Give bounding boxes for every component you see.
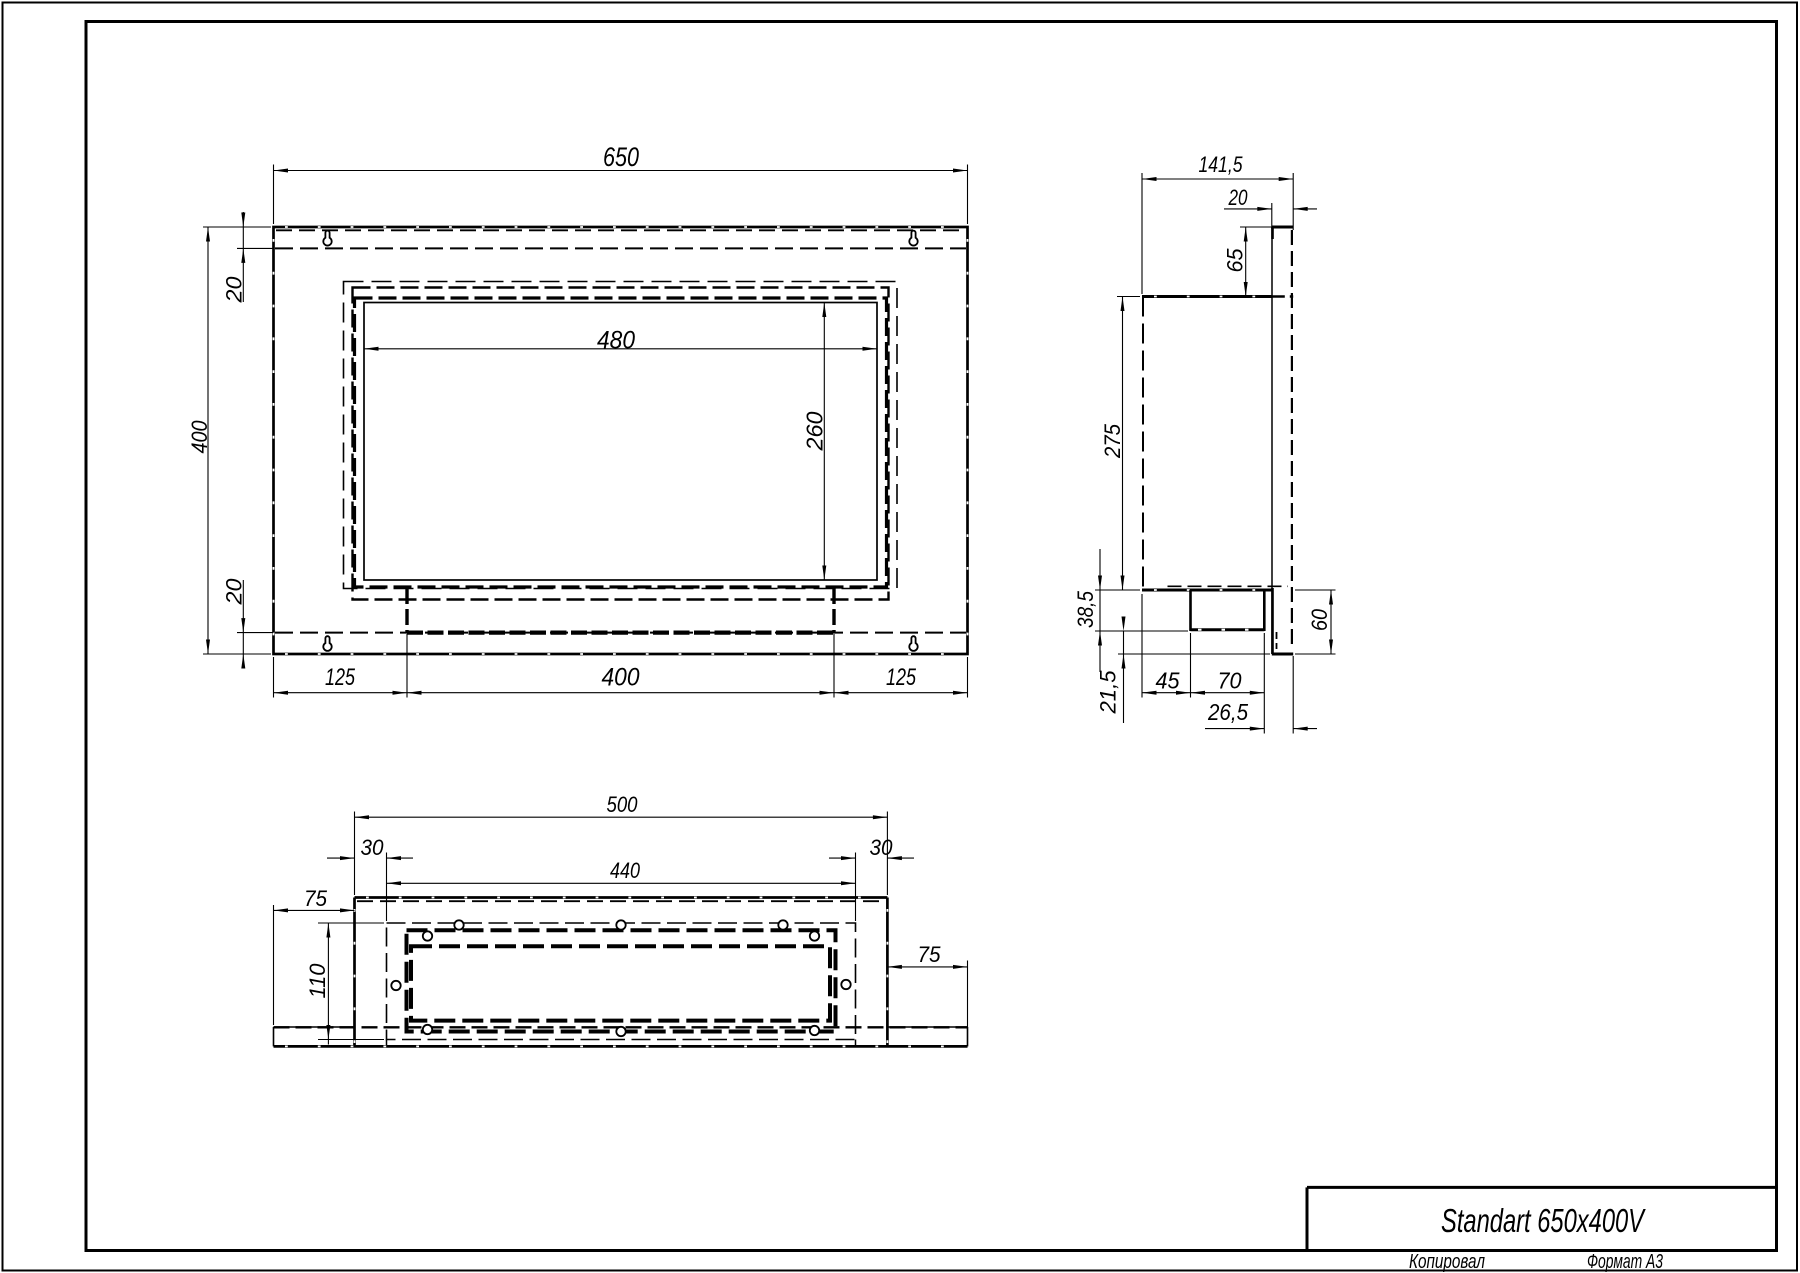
svg-text:400: 400: [602, 663, 640, 691]
svg-text:30: 30: [361, 835, 385, 860]
svg-text:60: 60: [1307, 608, 1332, 631]
svg-text:20: 20: [1228, 185, 1248, 210]
svg-text:38,5: 38,5: [1073, 590, 1098, 628]
svg-text:440: 440: [610, 858, 641, 883]
svg-text:260: 260: [802, 411, 828, 451]
svg-text:45: 45: [1156, 668, 1180, 694]
svg-text:Копировал: Копировал: [1409, 1250, 1485, 1273]
svg-text:500: 500: [607, 792, 639, 817]
svg-text:275: 275: [1100, 423, 1125, 459]
svg-text:125: 125: [886, 664, 916, 691]
svg-text:650: 650: [603, 142, 639, 172]
svg-text:Формат А3: Формат А3: [1587, 1250, 1663, 1273]
svg-text:65: 65: [1223, 248, 1248, 273]
svg-text:21,5: 21,5: [1096, 670, 1121, 715]
svg-text:20: 20: [221, 276, 246, 304]
svg-text:Standart 650x400V: Standart 650x400V: [1441, 1202, 1646, 1239]
svg-text:110: 110: [305, 963, 330, 999]
svg-text:30: 30: [870, 835, 894, 860]
svg-text:400: 400: [187, 420, 212, 454]
svg-text:141,5: 141,5: [1199, 152, 1244, 177]
svg-text:20: 20: [221, 578, 246, 606]
svg-text:70: 70: [1218, 668, 1242, 694]
svg-text:125: 125: [325, 664, 355, 691]
svg-text:480: 480: [597, 326, 635, 354]
svg-text:26,5: 26,5: [1207, 699, 1248, 725]
svg-text:75: 75: [918, 942, 942, 967]
svg-text:75: 75: [304, 886, 328, 911]
